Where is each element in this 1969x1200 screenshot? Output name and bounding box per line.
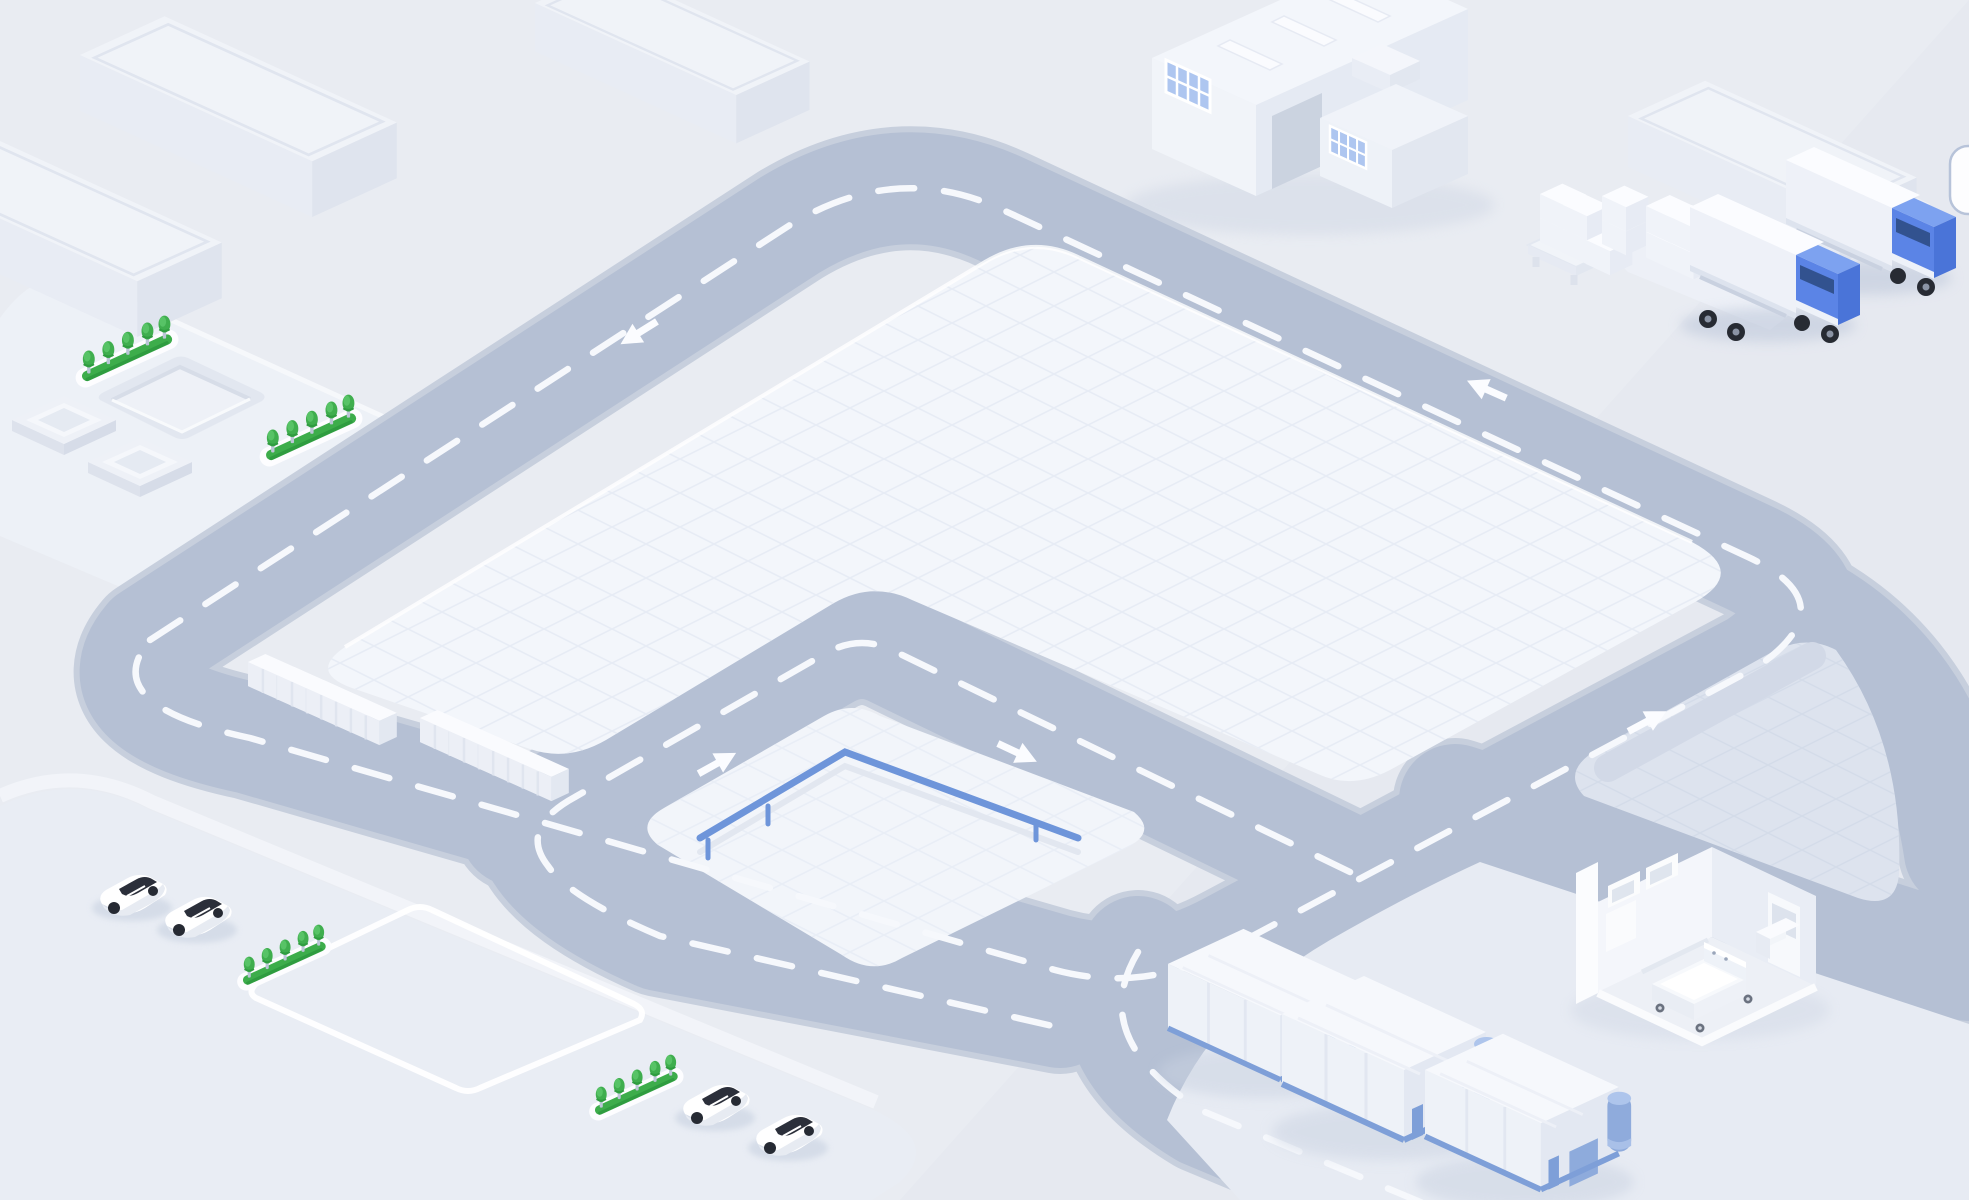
illustration-stage (0, 0, 1969, 1200)
room-outer-wall (1576, 862, 1598, 1004)
edge-panel-chip[interactable] (1950, 146, 1969, 214)
